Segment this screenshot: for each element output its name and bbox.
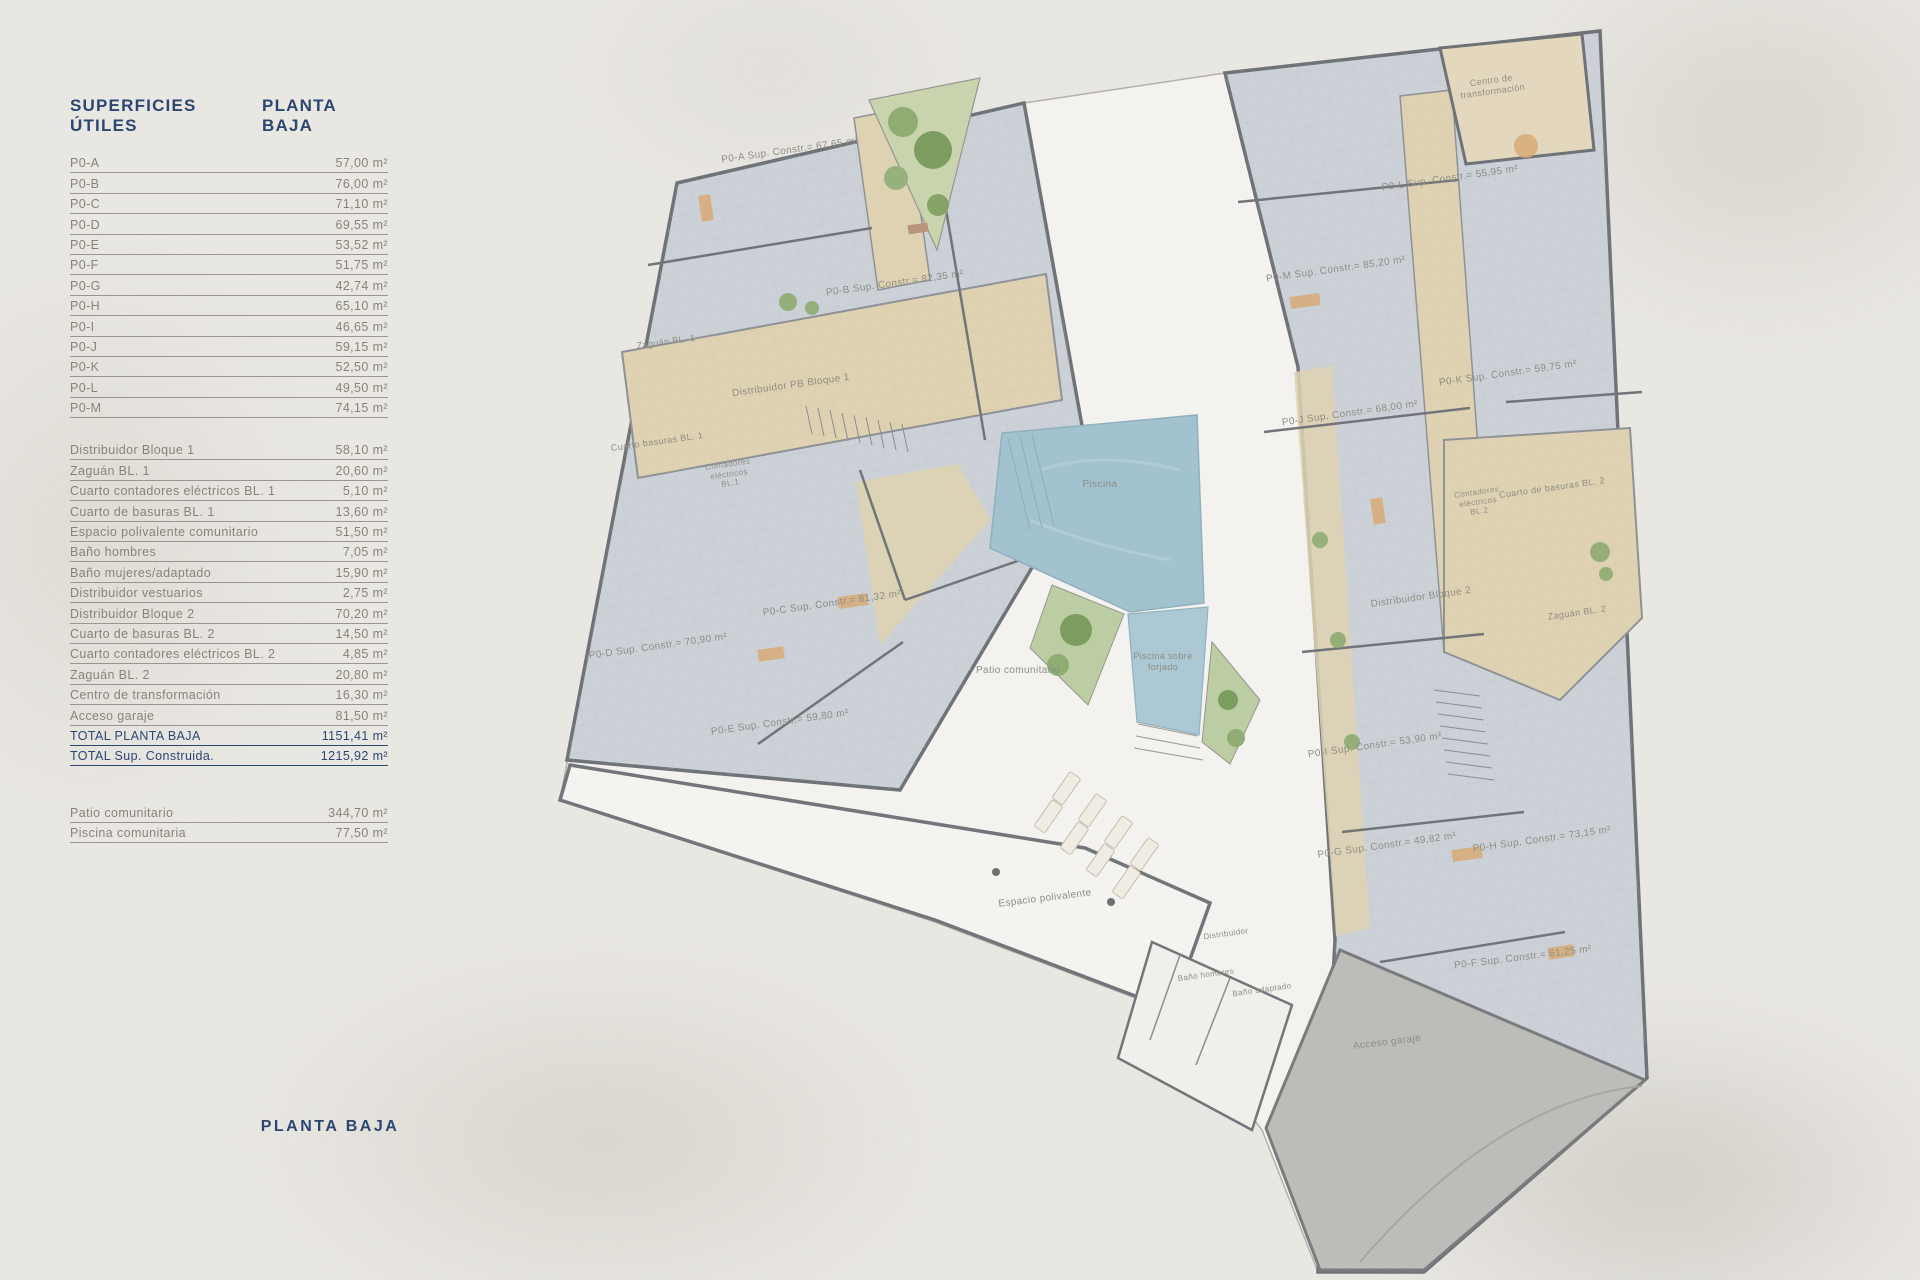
table-row: P0-K52,50 m² (70, 357, 388, 377)
row-label: Zaguán BL. 2 (70, 668, 150, 682)
panel-header: SUPERFICIES ÚTILES PLANTA BAJA (70, 96, 388, 136)
row-value: 14,50 m² (335, 627, 388, 641)
table-row: TOTAL Sup. Construida.1215,92 m² (70, 746, 388, 766)
table-row: Baño hombres7,05 m² (70, 542, 388, 562)
row-label: P0-C (70, 197, 100, 211)
row-label: Piscina comunitaria (70, 826, 186, 840)
row-value: 5,10 m² (343, 484, 388, 498)
row-value: 59,15 m² (335, 340, 388, 354)
page: P0-A Sup. Constr.= 67,65 m²P0-B Sup. Con… (0, 0, 1920, 1280)
row-value: 42,74 m² (335, 279, 388, 293)
row-value: 2,75 m² (343, 586, 388, 600)
row-label: Baño mujeres/adaptado (70, 566, 211, 580)
table-row: Cuarto contadores eléctricos BL. 15,10 m… (70, 481, 388, 501)
row-label: Baño hombres (70, 545, 156, 559)
row-value: 51,75 m² (335, 258, 388, 272)
row-value: 7,05 m² (343, 545, 388, 559)
table-row: Acceso garaje81,50 m² (70, 705, 388, 725)
table-row: P0-J59,15 m² (70, 337, 388, 357)
row-label: Espacio polivalente comunitario (70, 525, 258, 539)
row-value: 81,50 m² (335, 709, 388, 723)
table-row: Distribuidor Bloque 270,20 m² (70, 603, 388, 623)
row-label: P0-J (70, 340, 97, 354)
table-row: Espacio polivalente comunitario51,50 m² (70, 522, 388, 542)
common-areas-table: Distribuidor Bloque 158,10 m²Zaguán BL. … (70, 440, 388, 725)
table-row: P0-F51,75 m² (70, 255, 388, 275)
table-row: Cuarto de basuras BL. 113,60 m² (70, 501, 388, 521)
row-label: P0-M (70, 401, 101, 415)
row-value: 4,85 m² (343, 647, 388, 661)
table-row: Centro de transformación16,30 m² (70, 685, 388, 705)
row-label: TOTAL Sup. Construida. (70, 749, 214, 763)
table-row: P0-B76,00 m² (70, 173, 388, 193)
table-row: P0-M74,15 m² (70, 398, 388, 418)
row-label: P0-K (70, 360, 99, 374)
table-row: Distribuidor Bloque 158,10 m² (70, 440, 388, 460)
row-label: P0-L (70, 381, 98, 395)
row-value: 1151,41 m² (322, 729, 388, 743)
row-value: 49,50 m² (335, 381, 388, 395)
row-value: 77,50 m² (335, 826, 388, 840)
table-row: Cuarto contadores eléctricos BL. 24,85 m… (70, 644, 388, 664)
panel-subtitle: PLANTA BAJA (262, 96, 388, 136)
row-label: Cuarto contadores eléctricos BL. 1 (70, 484, 275, 498)
row-value: 52,50 m² (335, 360, 388, 374)
row-label: P0-G (70, 279, 101, 293)
table-row: Patio comunitario344,70 m² (70, 802, 388, 822)
table-row: P0-D69,55 m² (70, 214, 388, 234)
outdoor-table: Patio comunitario344,70 m²Piscina comuni… (70, 802, 388, 843)
row-value: 13,60 m² (335, 505, 388, 519)
totals-table: TOTAL PLANTA BAJA1151,41 m²TOTAL Sup. Co… (70, 726, 388, 767)
table-row: Zaguán BL. 120,60 m² (70, 460, 388, 480)
table-row: P0-H65,10 m² (70, 296, 388, 316)
surfaces-panel: SUPERFICIES ÚTILES PLANTA BAJA P0-A57,00… (70, 96, 388, 865)
row-label: Centro de transformación (70, 688, 221, 702)
table-row: Piscina comunitaria77,50 m² (70, 823, 388, 843)
row-value: 57,00 m² (335, 156, 388, 170)
table-row: Cuarto de basuras BL. 214,50 m² (70, 624, 388, 644)
plan-title: PLANTA BAJA (200, 1118, 460, 1136)
table-row: P0-G42,74 m² (70, 275, 388, 295)
row-label: Distribuidor Bloque 2 (70, 607, 194, 621)
row-value: 20,80 m² (335, 668, 388, 682)
row-value: 58,10 m² (335, 443, 388, 457)
row-value: 65,10 m² (335, 299, 388, 313)
row-value: 70,20 m² (335, 607, 388, 621)
row-value: 16,30 m² (335, 688, 388, 702)
row-label: Cuarto de basuras BL. 1 (70, 505, 215, 519)
row-label: Patio comunitario (70, 806, 173, 820)
row-value: 1215,92 m² (321, 749, 388, 763)
table-row: P0-A57,00 m² (70, 153, 388, 173)
table-row: P0-C71,10 m² (70, 194, 388, 214)
row-value: 69,55 m² (335, 218, 388, 232)
row-label: Cuarto contadores eléctricos BL. 2 (70, 647, 275, 661)
row-value: 74,15 m² (335, 401, 388, 415)
row-label: Cuarto de basuras BL. 2 (70, 627, 215, 641)
row-value: 344,70 m² (328, 806, 388, 820)
row-value: 76,00 m² (335, 177, 388, 191)
row-label: P0-H (70, 299, 100, 313)
row-value: 53,52 m² (335, 238, 388, 252)
table-row: Zaguán BL. 220,80 m² (70, 664, 388, 684)
row-label: Distribuidor vestuarios (70, 586, 203, 600)
row-label: Zaguán BL. 1 (70, 464, 150, 478)
row-value: 71,10 m² (335, 197, 388, 211)
table-row: P0-I46,65 m² (70, 316, 388, 336)
table-row: P0-L49,50 m² (70, 377, 388, 397)
row-label: P0-A (70, 156, 99, 170)
row-label: P0-I (70, 320, 95, 334)
row-value: 51,50 m² (335, 525, 388, 539)
table-row: TOTAL PLANTA BAJA1151,41 m² (70, 726, 388, 746)
units-table: P0-A57,00 m²P0-B76,00 m²P0-C71,10 m²P0-D… (70, 153, 388, 418)
row-label: P0-B (70, 177, 99, 191)
row-label: Distribuidor Bloque 1 (70, 443, 194, 457)
table-row: Distribuidor vestuarios2,75 m² (70, 583, 388, 603)
table-row: P0-E53,52 m² (70, 235, 388, 255)
row-label: P0-D (70, 218, 100, 232)
row-value: 46,65 m² (335, 320, 388, 334)
row-label: Acceso garaje (70, 709, 154, 723)
row-label: P0-F (70, 258, 99, 272)
row-label: TOTAL PLANTA BAJA (70, 729, 201, 743)
row-value: 15,90 m² (335, 566, 388, 580)
panel-title: SUPERFICIES ÚTILES (70, 96, 262, 136)
row-label: P0-E (70, 238, 99, 252)
table-row: Baño mujeres/adaptado15,90 m² (70, 562, 388, 582)
row-value: 20,60 m² (335, 464, 388, 478)
